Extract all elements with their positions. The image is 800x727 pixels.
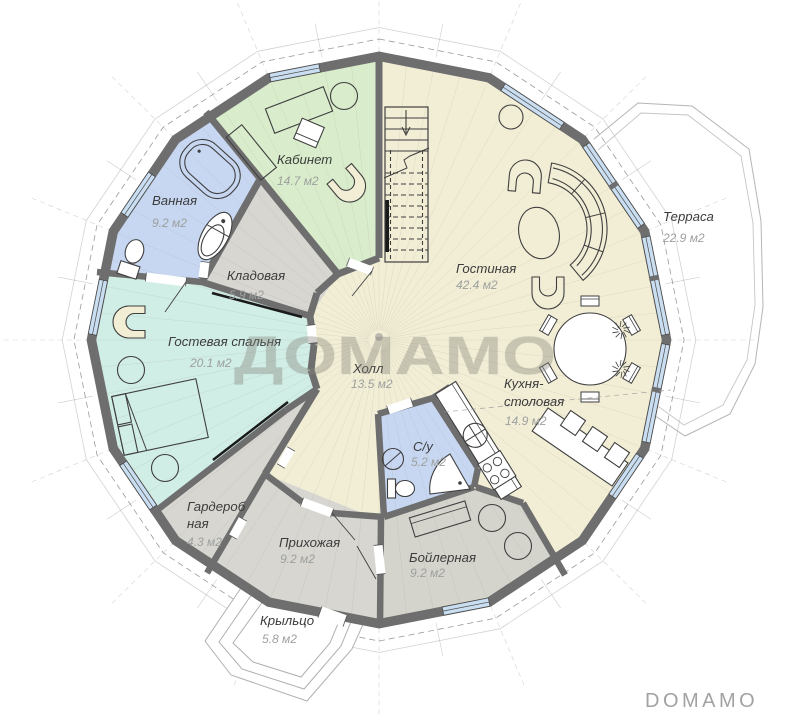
svg-text:14.7 м2: 14.7 м2	[277, 174, 319, 188]
svg-text:Кабинет: Кабинет	[277, 152, 332, 167]
svg-text:Гостиная: Гостиная	[456, 261, 516, 276]
svg-text:Терраса: Терраса	[663, 209, 714, 224]
svg-text:Бойлерная: Бойлерная	[409, 550, 476, 565]
svg-text:Кладовая: Кладовая	[227, 268, 285, 283]
svg-text:столовая: столовая	[504, 394, 564, 409]
svg-text:5.9 м2: 5.9 м2	[229, 288, 264, 302]
svg-text:DOMAMO: DOMAMO	[645, 690, 758, 712]
svg-text:Крыльцо: Крыльцо	[260, 613, 314, 628]
svg-text:9.2 м2: 9.2 м2	[410, 566, 445, 580]
svg-text:20.1 м2: 20.1 м2	[189, 356, 232, 370]
svg-text:Гардероб: Гардероб	[187, 499, 246, 514]
svg-text:5.8 м2: 5.8 м2	[262, 632, 297, 646]
svg-text:ная: ная	[187, 516, 209, 531]
svg-text:42.4 м2: 42.4 м2	[456, 278, 498, 292]
svg-text:14.9 м2: 14.9 м2	[505, 414, 547, 428]
svg-text:9.2 м2: 9.2 м2	[152, 216, 187, 230]
svg-text:Ванная: Ванная	[152, 193, 197, 208]
svg-text:22.9 м2: 22.9 м2	[662, 231, 705, 245]
svg-text:С/у: С/у	[413, 439, 434, 454]
svg-text:5.2 м2: 5.2 м2	[411, 455, 446, 469]
svg-text:4.3 м2: 4.3 м2	[187, 535, 222, 549]
svg-text:Прихожая: Прихожая	[279, 535, 340, 550]
svg-text:ДОМАМО: ДОМАМО	[234, 326, 556, 386]
svg-text:9.2 м2: 9.2 м2	[280, 552, 315, 566]
